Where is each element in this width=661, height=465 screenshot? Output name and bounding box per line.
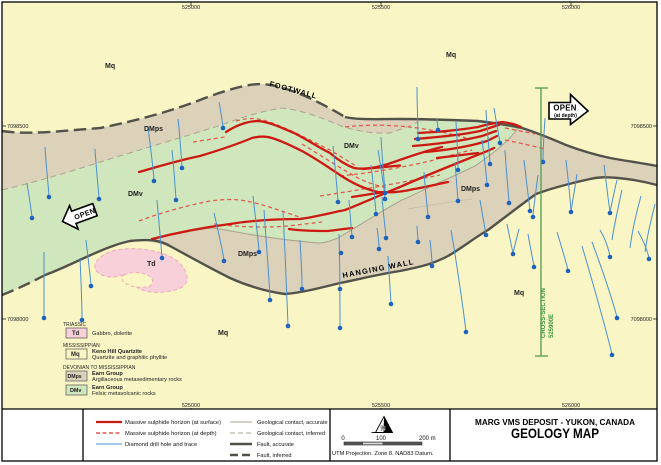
svg-text:TRIASSIC: TRIASSIC [63, 322, 86, 328]
svg-text:DMv: DMv [70, 388, 81, 394]
svg-text:7098000: 7098000 [7, 317, 28, 323]
svg-text:525900E: 525900E [549, 314, 555, 338]
svg-text:Felsic metavolcanic rocks: Felsic metavolcanic rocks [92, 391, 156, 397]
svg-text:Mq: Mq [218, 330, 228, 337]
svg-text:DMps: DMps [238, 251, 257, 258]
svg-text:Geological contact, accurate: Geological contact, accurate [257, 420, 328, 426]
svg-text:Massive sulphide horizon (at s: Massive sulphide horizon (at surface) [125, 420, 221, 426]
svg-text:UTM Projection. Zone 8. NAD83: UTM Projection. Zone 8. NAD83 Datum. [332, 451, 434, 457]
svg-text:Mq: Mq [446, 52, 456, 59]
svg-text:DMv: DMv [128, 191, 143, 198]
svg-text:N: N [381, 424, 386, 433]
svg-text:Argillaceous metasedimentary r: Argillaceous metasedimentary rocks [92, 377, 182, 383]
svg-text:Mq: Mq [71, 352, 80, 358]
svg-text:Td: Td [72, 331, 80, 337]
svg-text:7098000: 7098000 [631, 317, 652, 323]
svg-text:Mq: Mq [105, 63, 115, 70]
svg-text:Fault, accurate: Fault, accurate [257, 442, 294, 448]
svg-text:Td: Td [147, 261, 156, 268]
svg-text:200 m: 200 m [419, 436, 436, 442]
svg-text:7098500: 7098500 [7, 124, 28, 130]
svg-text:DMps: DMps [461, 186, 480, 193]
svg-text:Geological contact, inferred: Geological contact, inferred [257, 431, 325, 437]
svg-text:DMv: DMv [344, 143, 359, 150]
svg-text:DMps: DMps [68, 374, 82, 380]
svg-text:Gabbro, dolerite: Gabbro, dolerite [92, 331, 132, 337]
svg-text:GEOLOGY MAP: GEOLOGY MAP [511, 425, 599, 441]
svg-text:(at depth): (at depth) [554, 113, 577, 119]
svg-text:Mq: Mq [514, 290, 524, 297]
svg-text:Diamond drill hole and trace: Diamond drill hole and trace [125, 442, 197, 448]
svg-text:Quartzite and graphitic phylli: Quartzite and graphitic phyllite [92, 355, 167, 361]
svg-text:CROSS-SECTION: CROSS-SECTION [541, 288, 547, 338]
svg-text:Massive sulphide horizon (at d: Massive sulphide horizon (at depth) [125, 431, 217, 437]
svg-text:OPEN: OPEN [553, 104, 576, 113]
svg-text:100: 100 [376, 436, 387, 442]
svg-text:7098500: 7098500 [631, 124, 652, 130]
svg-text:Fault, inferred: Fault, inferred [257, 453, 292, 459]
svg-text:DMps: DMps [144, 126, 163, 133]
